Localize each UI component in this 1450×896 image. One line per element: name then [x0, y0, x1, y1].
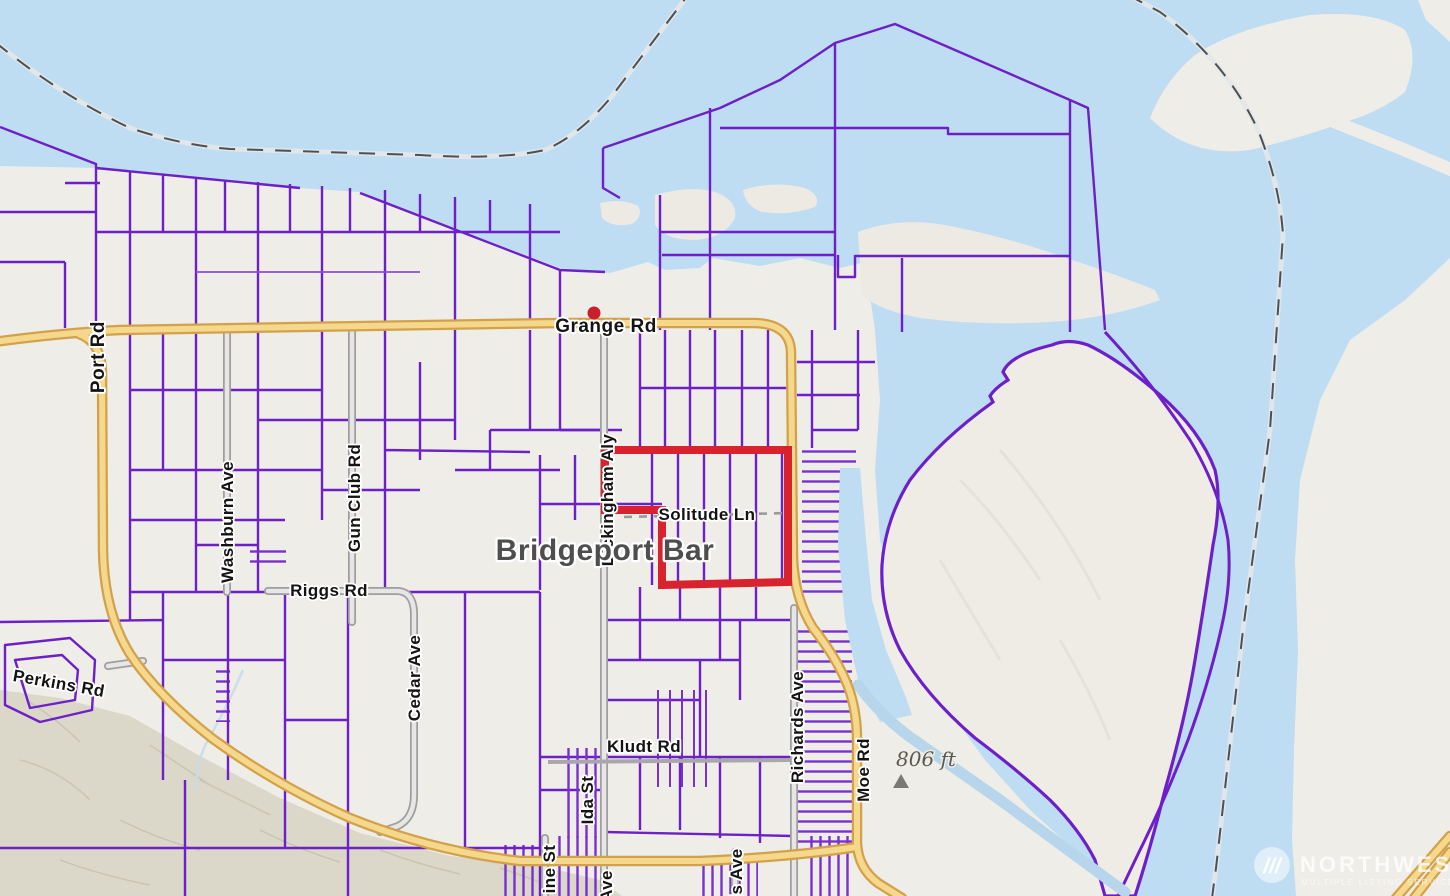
logo-slash-glyph: /// [1262, 855, 1283, 878]
road-label-ida-st: Ida St [578, 776, 597, 825]
road-label-is-ave: is Ave [727, 848, 746, 896]
road-label-moe-rd: Moe Rd [854, 738, 873, 802]
road-label-washburn-ave: Washburn Ave [218, 461, 237, 583]
watermark-tagline: MULTIPLE LISTING SERVICE [1301, 877, 1450, 887]
road-label-solitude-ln: Solitude Ln [659, 505, 756, 524]
road-label-gun-club-rd: Gun Club Rd [345, 444, 364, 552]
road-label-port-rd: Port Rd [88, 321, 109, 393]
road-label-ave: Ave [597, 870, 616, 896]
road-label-ine-st: ine St [540, 845, 559, 894]
road-label-cedar-ave: Cedar Ave [405, 635, 424, 721]
road-label-grange-rd: Grange Rd [555, 316, 657, 337]
road-label-kludt-rd: Kludt Rd [607, 737, 681, 756]
kludt-rd-road [548, 760, 790, 762]
map-image[interactable]: Grange Rd Port Rd Washburn Ave Gun Club … [0, 0, 1450, 896]
watermark-brand: NORTHWEST [1300, 852, 1450, 877]
road-label-riggs-rd: Riggs Rd [290, 581, 368, 600]
road-label-richards-ave: Richards Ave [788, 671, 807, 783]
elevation-label: 806 ft [896, 747, 957, 771]
map-canvas[interactable]: Grange Rd Port Rd Washburn Ave Gun Club … [0, 0, 1450, 896]
place-label-bridgeport-bar: Bridgeport Bar [496, 534, 715, 567]
